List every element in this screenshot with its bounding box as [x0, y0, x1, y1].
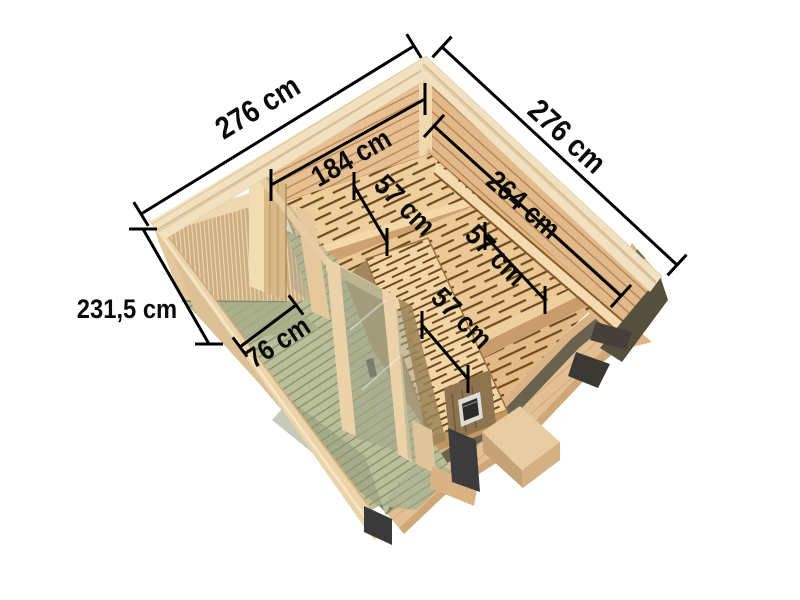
svg-text:231,5 cm: 231,5 cm	[77, 295, 177, 325]
